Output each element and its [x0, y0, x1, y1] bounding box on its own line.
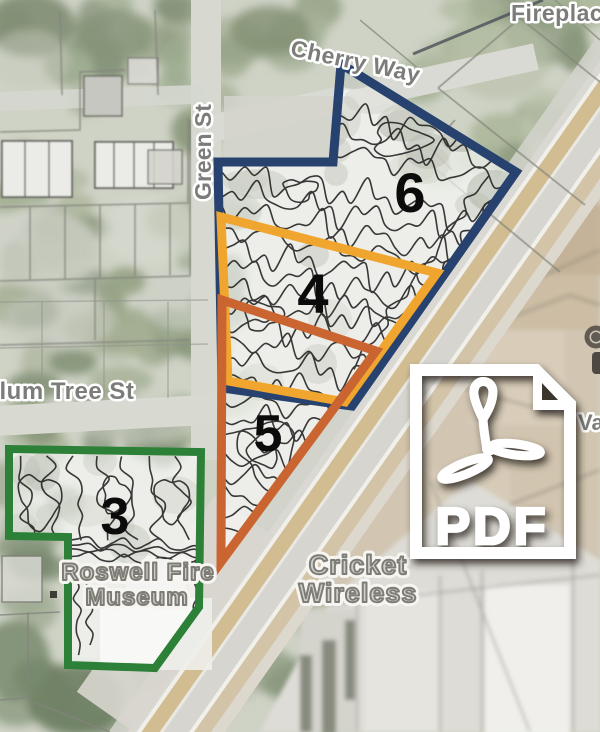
- svg-text:3: 3: [101, 488, 130, 546]
- svg-text:Roswell Fire: Roswell Fire: [61, 559, 214, 586]
- svg-text:4: 4: [297, 262, 328, 325]
- svg-text:Museum: Museum: [85, 584, 188, 611]
- svg-text:Va: Va: [578, 410, 600, 435]
- svg-text:5: 5: [254, 405, 283, 463]
- svg-text:Green St: Green St: [190, 104, 216, 200]
- svg-text:Plum Tree St: Plum Tree St: [0, 378, 134, 405]
- svg-text:PDF: PDF: [436, 498, 549, 556]
- svg-text:Wireless: Wireless: [299, 578, 418, 608]
- svg-text:6: 6: [394, 161, 425, 224]
- svg-text:Cricket: Cricket: [309, 550, 408, 580]
- svg-text:Fireplace: Fireplace: [511, 0, 600, 26]
